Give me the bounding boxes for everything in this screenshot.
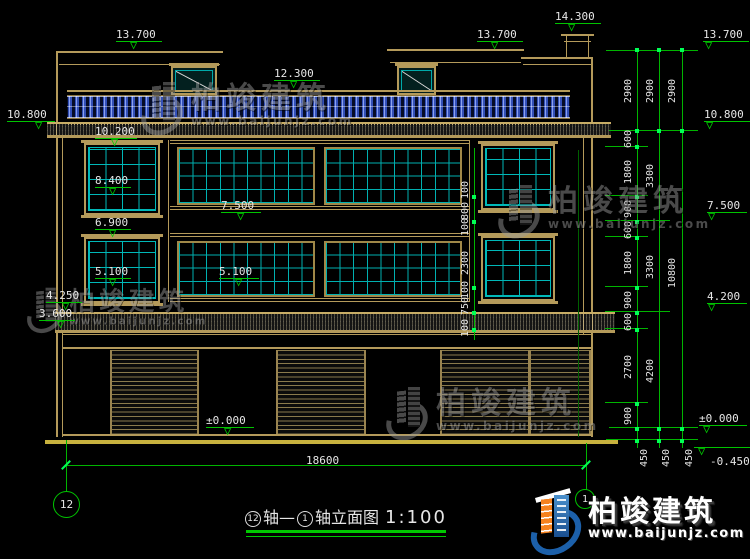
rolling-shutter-1 [110,350,199,434]
dim-col1-value: 600 [623,300,635,344]
elev-marker-13700-mid: 13.700▽ [477,29,523,51]
brand-logo-icon [528,487,582,551]
roof-dormer-left-glass [175,70,213,91]
dim-ticks [472,195,476,199]
overall-width-value: 18600 [306,454,339,467]
roof-cap-left-top [56,51,223,53]
elev-marker-13700-right: 13.700▽ [703,29,749,51]
dim-col2-value: 4200 [645,349,657,393]
spandrel-line [170,233,470,234]
dim-line-mid [474,148,475,340]
elev-marker-14300: 14.300▽ [555,11,601,33]
ext-line-bottom-right [586,443,587,491]
elev-marker-10200: 10.200▽ [95,126,137,148]
dim-ticks [635,145,639,149]
title-text-2: 轴立面图 [315,508,379,527]
shutter-head-line [63,347,591,349]
axis-bubble-12-label: 12 [60,498,73,511]
elev-marker-3600: 3.600▽ [39,308,75,330]
dim-base-value: 450 [661,436,673,480]
spandrel-line [170,206,470,207]
elev-marker-4200-right: 4.200▽ [707,291,747,313]
spandrel-line [170,298,470,299]
dim-col3-value: 10800 [667,251,679,295]
roof-edge-right-2 [523,64,591,65]
curtainwall-edge-left [168,140,169,302]
spandrel-line [170,301,470,302]
brand-url: www.baijunjz.com [588,526,745,542]
dim-base-value: 450 [639,436,651,480]
dim-col1-value: 2900 [623,69,635,113]
spandrel-line [170,209,470,210]
rolling-shutter-3 [440,350,530,434]
ground-line [63,434,592,436]
ext-line-bottom-left [66,440,67,493]
dim-mid-value: 100 [460,306,472,350]
window-2f-right-glazing [485,240,551,297]
dim-col1-value: 2700 [623,345,635,389]
elev-marker-10800-left: 10.800▽ [7,109,55,131]
window-3f-right [481,144,555,210]
ext-line [605,220,670,221]
elev-marker-6900: 6.900▽ [95,217,131,239]
brand-logo: 柏竣建筑 www.baijunjz.com [528,487,745,551]
elev-marker-5100-mid: 5.100▽ [219,266,259,288]
dim-ticks [635,48,639,52]
curtainwall-2f-right [324,241,462,297]
ground-slab-band [45,440,618,444]
elev-marker-13700-left: 13.700▽ [116,29,162,51]
axis-bubble-12: 12 [53,491,80,518]
watermark-logo-icon [385,385,429,437]
elev-marker-zero-right: ±0.000▽ [699,413,747,435]
spandrel-line [170,236,470,237]
dim-col3-value: 2900 [667,69,679,113]
elev-marker-10800-right: 10.800▽ [704,109,750,131]
dim-col1-value: 900 [623,394,635,438]
elev-marker-8400: 8.400▽ [95,175,131,197]
dim-line-col2 [659,51,660,448]
wall-right-inner [583,138,584,334]
brand-name: 柏竣建筑 [588,496,745,526]
elev-marker-zero-mid: ±0.000▽ [206,415,254,437]
rolling-shutter-2 [276,350,366,434]
elev-marker-7500-right: 7.500▽ [707,200,747,222]
dim-col2-value: 3300 [645,245,657,289]
title-scale: 1:100 [385,507,447,528]
ext-line [605,311,670,312]
stair-bulkhead-wall-r [588,36,589,57]
ext-line [606,50,698,51]
curtainwall-3f-right [324,147,462,205]
elev-marker-neg450: ▽ -0.450 [694,446,750,457]
curtainwall-3f-left [177,147,315,205]
wall-left-outer [56,51,58,437]
title-axis-circle-1: 1 [297,511,313,527]
wall-right-outer [591,57,593,437]
dim-col2-value: 3300 [645,154,657,198]
cad-elevation-drawing: 18600 12 1 13.700▽ 12.300▽ 13.700▽ 14.30… [0,0,750,559]
title-text-1: 轴— [263,508,295,527]
title-axis-circle-12: 12 [245,511,261,527]
roof-edge-right [521,57,593,59]
window-3f-right-glazing [485,148,551,206]
drawing-title: 12轴—1轴立面图1:100 [243,504,447,528]
rolling-shutter-4 [529,350,591,434]
elev-marker-7500-mid: 7.500▽ [221,200,261,222]
dim-col2-value: 2900 [645,69,657,113]
dim-base-value: 450 [684,436,696,480]
elev-marker-12300: 12.300▽ [274,68,320,90]
stair-bulkhead-wall-l [566,36,567,57]
dim-line-col1 [637,51,638,448]
spandrel-line [170,140,470,141]
roof-dormer-right-glass [401,70,432,91]
wall-left-inner [62,138,63,437]
balustrade-balusters [67,96,570,118]
axis-extension-line [578,150,579,437]
dim-line-col3 [682,51,683,448]
title-underline-thin [246,536,446,537]
spandrel-line [170,143,470,144]
canopy-underline [63,334,591,335]
roof-balustrade [67,90,570,123]
stair-bulkhead-cap-2 [564,41,591,42]
window-2f-right [481,236,555,301]
title-underline-thick [246,530,446,533]
canopy-cornice [55,312,615,333]
elev-marker-5100-left: 5.100▽ [95,266,131,288]
